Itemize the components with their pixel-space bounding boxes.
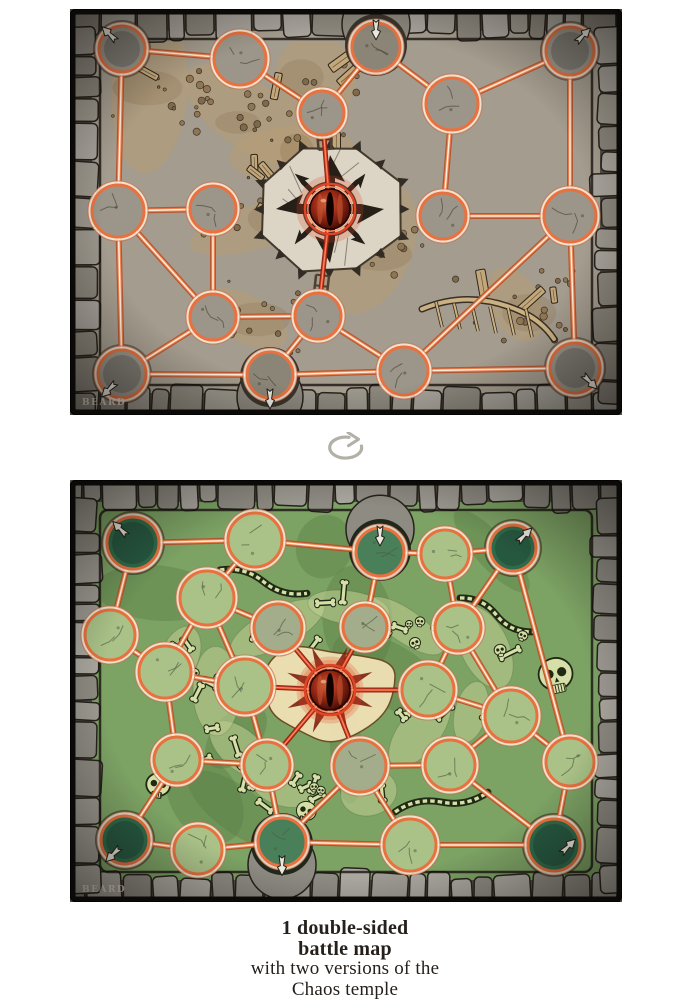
product-caption: 1 double-sided battle map with two versi… xyxy=(0,918,690,1000)
caption-line-3: with two versions of the xyxy=(0,959,690,980)
caption-line-4: Chaos temple xyxy=(0,980,690,1000)
flip-rotate-icon xyxy=(322,432,372,467)
caption-line-bold-2: battle map xyxy=(0,939,690,960)
caption-line-bold-1: 1 double-sided xyxy=(0,918,690,939)
battle-map-dungeon-side: BEARD xyxy=(70,9,622,415)
rotate-arrow-glyph xyxy=(322,432,372,467)
battle-map-bone-side: BEARD xyxy=(70,480,622,902)
